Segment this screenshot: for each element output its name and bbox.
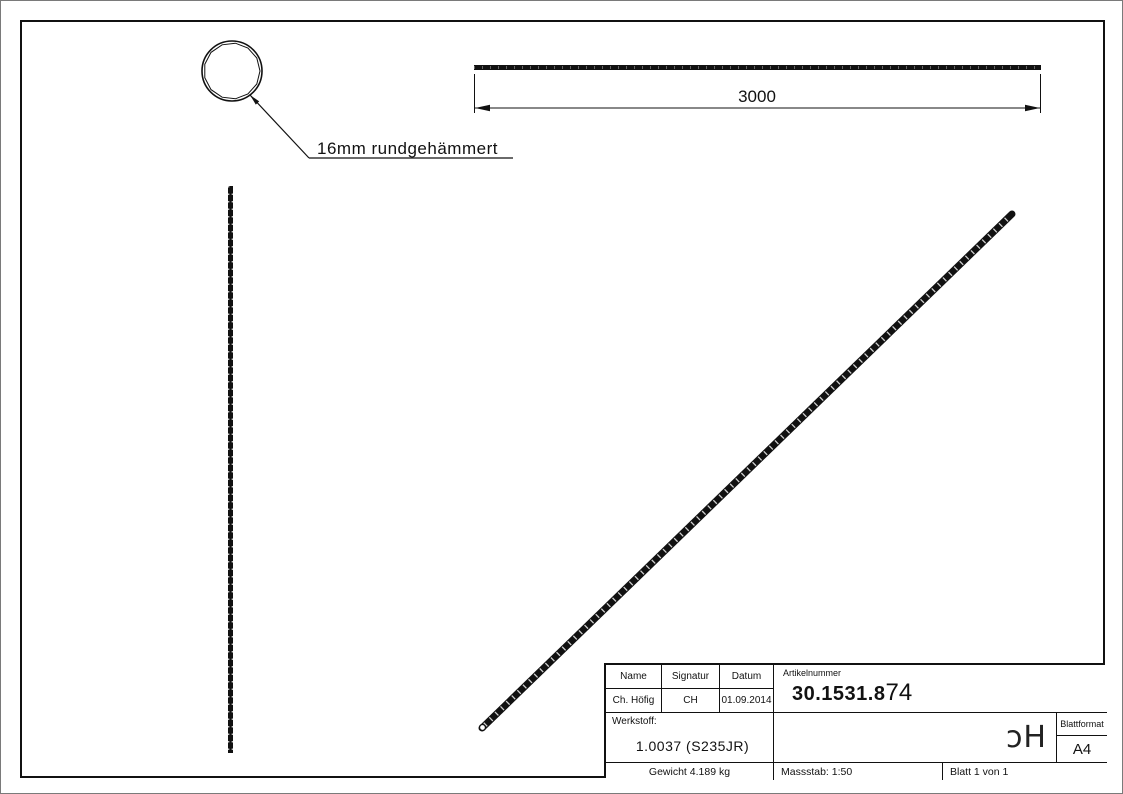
rod-side-body [228,186,233,753]
titleblock-artikelnummer-cell: Artikelnummer 30.1531.874 [774,665,1107,713]
rod-cross-section-view [202,41,262,101]
titleblock-value-signatur: CH [662,689,720,713]
rod-isometric-view [480,214,1013,731]
callout-label: 16mm rundgehämmert [317,139,517,159]
titleblock-logo-cell: ɔH [774,713,1057,763]
titleblock-value-datum: 01.09.2014 [720,689,774,713]
artikelnummer-value: 30.1531.874 [783,679,1107,707]
titleblock-value-name: Ch. Höfig [606,689,662,713]
rod-iso-end-face [480,725,486,731]
company-logo: ɔH [1006,723,1047,753]
dimension-arrowhead-left-icon [475,105,490,112]
titleblock-header-name: Name [606,665,662,689]
drawing-sheet: 16mm rundgehämmert 3000 Name Signatur Da… [0,0,1123,794]
titleblock-header-datum: Datum [720,665,774,689]
artikelnummer-suffix: 74 [885,679,912,706]
artikelnummer-main: 30.1531.8 [792,683,885,705]
dimension-arrowhead-right-icon [1025,105,1040,112]
artikelnummer-label: Artikelnummer [783,668,1107,678]
blattformat-value: A4 [1057,736,1107,763]
blatt-cell: Blatt 1 von 1 [943,763,1107,780]
werkstoff-value: 1.0037 (S235JR) [612,738,773,754]
title-block: Name Signatur Datum Artikelnummer 30.153… [604,663,1105,778]
blattformat-label: Blattformat [1057,713,1107,736]
titleblock-werkstoff-cell: Werkstoff: 1.0037 (S235JR) [606,713,774,763]
leader-line [250,95,309,158]
rod-side-view [228,186,233,753]
werkstoff-label: Werkstoff: [612,716,773,727]
gewicht-cell: Gewicht 4.189 kg [606,763,774,780]
titleblock-header-signatur: Signatur [662,665,720,689]
rod-iso-body [482,214,1012,728]
dimension-value-label: 3000 [717,87,797,107]
rod-outline-circle [202,41,262,101]
massstab-cell: Massstab: 1:50 [774,763,943,780]
